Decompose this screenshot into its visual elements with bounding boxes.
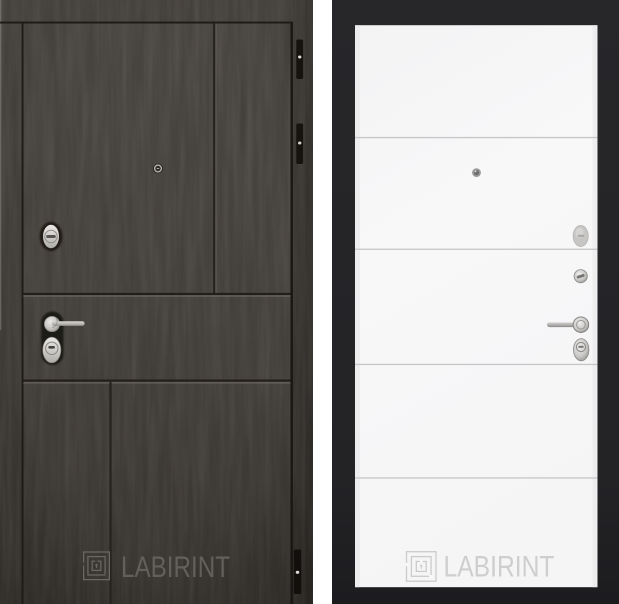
- svg-text:LABIRINT: LABIRINT: [444, 551, 555, 584]
- svg-text:LABIRINT: LABIRINT: [121, 551, 230, 584]
